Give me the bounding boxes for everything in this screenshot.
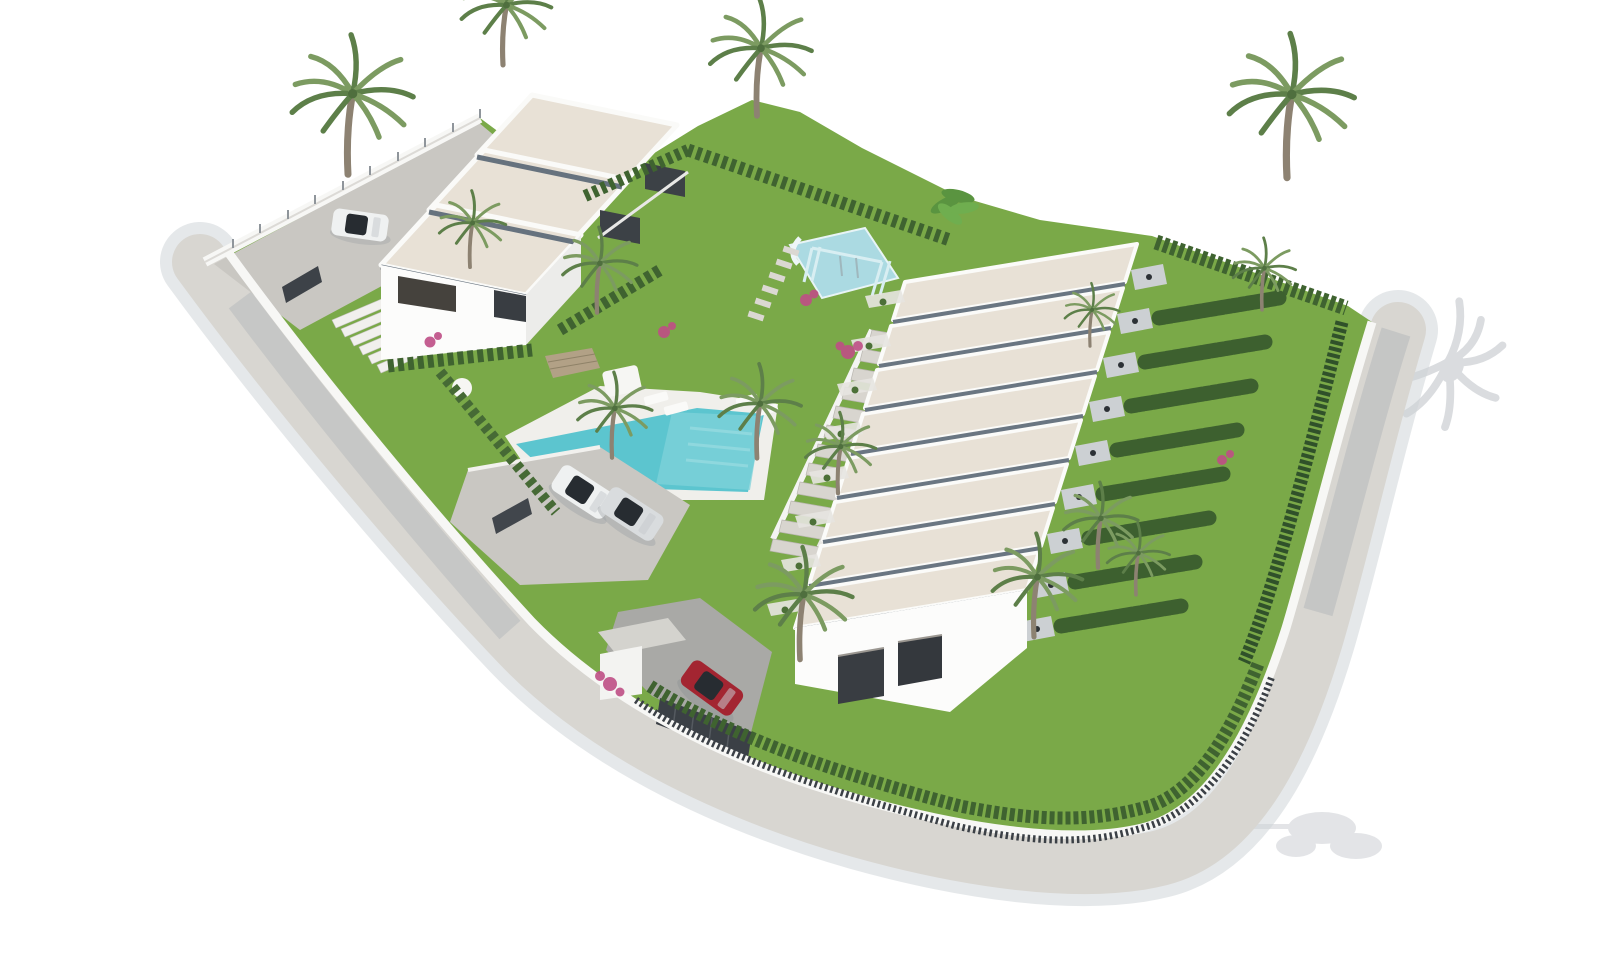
site-plan-render [0, 0, 1600, 960]
render-stage [0, 0, 1600, 960]
